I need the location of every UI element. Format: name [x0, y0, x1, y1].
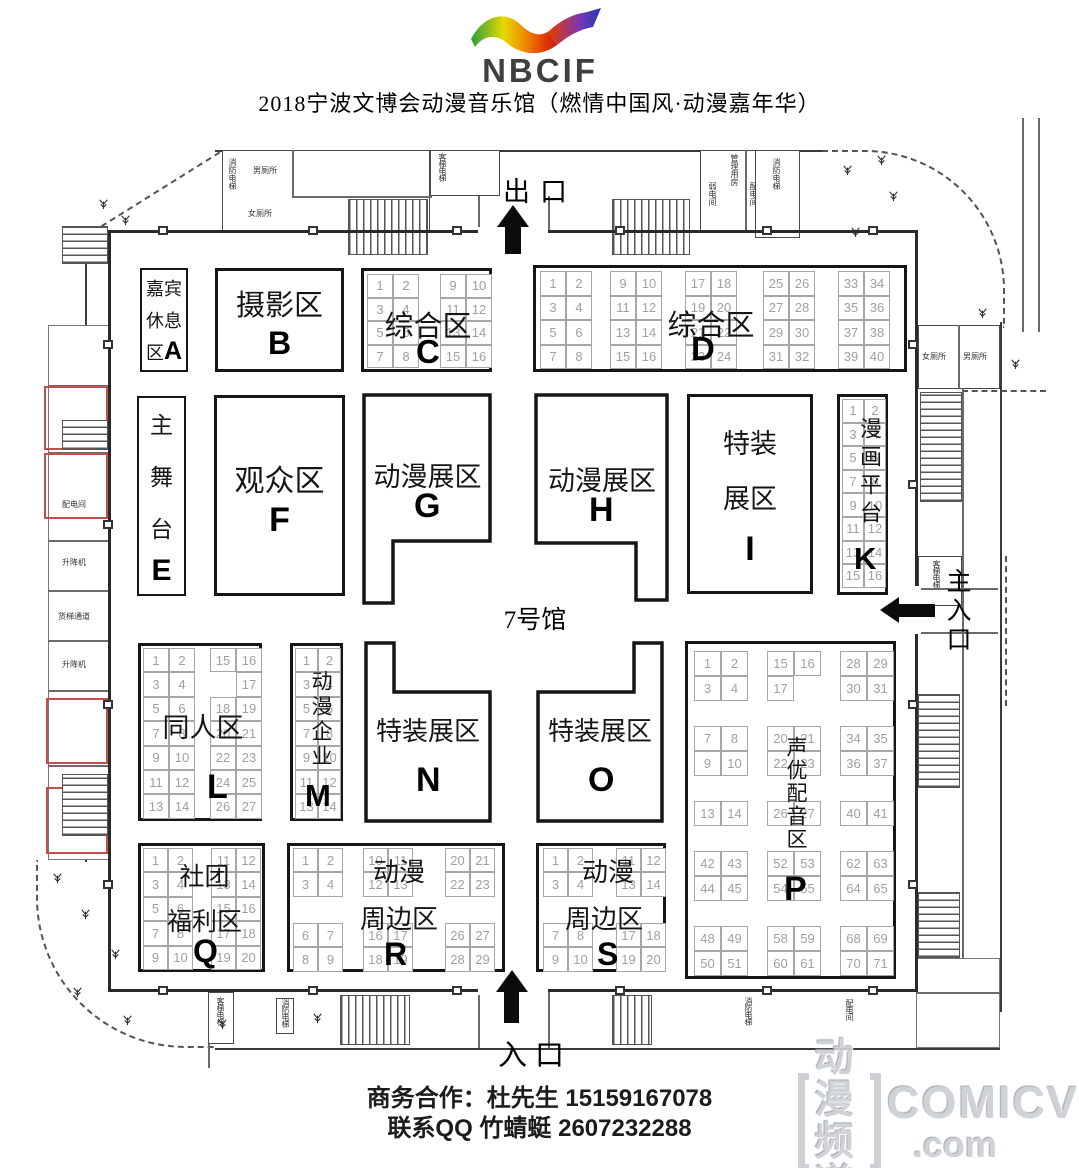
booth-cell: 27 — [470, 923, 495, 947]
booth-cell: 17 — [767, 676, 794, 701]
weak-current-room-label: 弱电间 — [708, 182, 716, 228]
zone-b-label: 摄影区 — [236, 282, 323, 324]
plant-icon — [96, 196, 111, 211]
zone-e: 主 舞 台 E — [137, 396, 186, 596]
booth-cell: 38 — [864, 320, 890, 345]
booth-cell: 2 — [566, 271, 592, 296]
booth-cell: 2 — [393, 274, 419, 298]
zone-f-label: 观众区 — [235, 456, 325, 500]
fire-elevator-label: 消防电梯 — [744, 997, 752, 1041]
booth-cell: 15 — [210, 648, 236, 672]
booth-cell: 40 — [864, 345, 890, 370]
exit-label: 出口 — [455, 170, 625, 209]
booth-grid: 62636465 — [840, 851, 894, 901]
booth-cell: 2 — [318, 648, 341, 672]
booth-cell: 28 — [840, 651, 867, 676]
booth-grid: 42434445 — [694, 851, 748, 901]
column-marker — [452, 986, 462, 995]
booth-cell: 10 — [721, 751, 748, 776]
booth-cell: 24 — [711, 345, 737, 370]
booth-cell: 20 — [641, 947, 666, 971]
booth-grid: 78910 — [694, 726, 748, 776]
womens-toilet-label: 女厕所 — [922, 352, 946, 361]
zone-i-letter: I — [745, 532, 754, 566]
booth-cell: 60 — [767, 951, 794, 976]
comicv-watermark: 动漫 频道 COMICV .com — [798, 1038, 1079, 1168]
booth-cell: 3 — [143, 672, 169, 696]
booth-cell: 17 — [685, 271, 711, 296]
zone-g-letter: G — [414, 489, 440, 523]
column-marker — [103, 340, 113, 349]
booth-cell: 45 — [721, 876, 748, 901]
logo-text: NBCIF — [425, 52, 655, 90]
plant-icon — [840, 162, 855, 177]
booth-cell: 39 — [838, 345, 864, 370]
zone-q: 12345678910 11121314151617181920 社团 福利区 … — [138, 843, 265, 972]
zone-p-label: 声优配音区 — [781, 736, 811, 866]
wall — [1022, 118, 1024, 332]
booth-grid: 910111213141516 — [610, 271, 662, 369]
booth-grid: 12345678 — [540, 271, 592, 369]
lift-label: 升降机 — [62, 660, 86, 669]
wall — [48, 690, 110, 692]
booth-cell: 16 — [236, 648, 262, 672]
booth-cell: 36 — [864, 296, 890, 321]
zone-n-label: 特装展区 — [376, 717, 480, 746]
plant-icon — [50, 870, 65, 885]
booth-cell: 12 — [169, 770, 195, 794]
page-title: 2018宁波文博会动漫音乐馆（燃情中国风·动漫嘉年华） — [0, 86, 1079, 118]
zone-s-letter: S — [597, 938, 618, 970]
booth-grid: 3334353637383940 — [838, 271, 890, 369]
exit-arrow-icon — [505, 226, 521, 254]
booth-grid: 1314 — [694, 801, 748, 826]
booth-cell: 31 — [867, 676, 894, 701]
main-entrance-arrow-icon — [880, 597, 899, 623]
column-marker — [308, 226, 318, 235]
main-entrance-label: 主入口 — [938, 568, 974, 672]
zone-c-letter: C — [416, 335, 440, 368]
booth-cell: 1 — [293, 848, 318, 872]
womens-toilet-label: 女厕所 — [248, 209, 272, 218]
zone-a: 嘉宾 休息 区 A — [140, 268, 188, 372]
zone-a-label: 休息 — [146, 307, 182, 333]
booth-cell: 14 — [721, 801, 748, 826]
booth-cell: 3 — [540, 296, 566, 321]
stairs-icon — [918, 694, 960, 788]
booth-cell: 51 — [721, 951, 748, 976]
stairs-icon — [340, 995, 410, 1045]
booth-grid: 28293031 — [840, 651, 894, 701]
wall — [745, 150, 747, 232]
power-room-label: 配电间 — [845, 999, 853, 1035]
booth-cell: 18 — [711, 271, 737, 296]
wall — [48, 765, 110, 767]
dashed-corner — [92, 152, 220, 233]
zone-k-label: 漫画平台 — [853, 417, 885, 543]
column-marker — [908, 880, 918, 889]
plant-icon — [78, 906, 93, 921]
booth-cell: 9 — [143, 746, 169, 770]
zone-g: 动漫展区 G — [362, 393, 493, 606]
booth-cell: 1 — [540, 271, 566, 296]
zone-o: 特装展区 O — [536, 641, 664, 823]
booth-cell: 26 — [789, 271, 815, 296]
plant-icon — [874, 152, 889, 167]
booth-cell: 11 — [143, 770, 169, 794]
booth-cell: 23 — [470, 872, 495, 896]
booth-cell: 25 — [763, 271, 789, 296]
column-marker — [615, 986, 625, 995]
stairs-icon — [62, 420, 108, 450]
booth-cell: 13 — [694, 801, 721, 826]
booth-cell: 41 — [867, 801, 894, 826]
zone-d-letter: D — [691, 332, 715, 365]
wall — [292, 196, 432, 198]
zone-q-label: 社团 — [179, 864, 229, 891]
booth-cell: 5 — [540, 320, 566, 345]
zone-s-label: 动漫 — [582, 858, 634, 887]
plant-icon — [310, 1010, 325, 1025]
dashed-wall — [962, 390, 1046, 392]
zone-m: 1234567891011121314 动漫企业 M — [290, 643, 343, 821]
booth-cell: 10 — [168, 946, 193, 970]
booth-cell: 35 — [867, 726, 894, 751]
plant-icon — [70, 984, 85, 999]
booth-cell: 68 — [840, 926, 867, 951]
entrance-label: 入口 — [450, 1032, 620, 1074]
zone-n-letter: N — [416, 763, 441, 797]
booth-cell: 7 — [367, 345, 393, 369]
booth-cell: 13 — [610, 320, 636, 345]
zone-f: 观众区 F — [214, 395, 345, 596]
booth-cell: 35 — [838, 296, 864, 321]
zone-r-letter: R — [384, 938, 407, 970]
zone-o-label: 特装展区 — [548, 717, 652, 746]
booth-cell: 1 — [694, 651, 721, 676]
booth-grid: 2526272829303132 — [763, 271, 815, 369]
booth-cell: 65 — [867, 876, 894, 901]
zone-b: 摄影区 B — [215, 268, 344, 372]
booth-cell: 9 — [440, 274, 466, 298]
zone-m-label: 动漫企业 — [306, 670, 336, 782]
booth-cell: 21 — [470, 848, 495, 872]
zone-a-letter: A — [164, 339, 182, 364]
booth-cell: 71 — [867, 951, 894, 976]
column-marker — [908, 340, 918, 349]
zone-f-letter: F — [269, 503, 290, 537]
booth-cell: 15 — [610, 345, 636, 370]
zone-e-letter: E — [151, 556, 171, 586]
zone-b-letter: B — [268, 327, 291, 359]
plant-icon — [215, 1016, 230, 1031]
zone-n: 特装展区 N — [364, 641, 492, 823]
management-room-label: 管理用房 — [730, 154, 738, 210]
column-marker — [158, 986, 168, 995]
zone-s: 1234 11121314 78910 17181920 动漫 周边区 S — [536, 843, 666, 972]
zone-e-label: 舞 — [150, 458, 173, 492]
booth-cell: 42 — [694, 851, 721, 876]
wall — [292, 150, 294, 196]
booth-cell: 16 — [466, 345, 492, 369]
booth-cell: 33 — [838, 271, 864, 296]
lift-label: 升降机 — [62, 558, 86, 567]
stairs-icon — [918, 892, 960, 958]
booth-cell: 1 — [367, 274, 393, 298]
wall — [1000, 322, 1002, 1012]
booth-cell: 3 — [293, 872, 318, 896]
zone-e-label: 台 — [150, 510, 173, 544]
booth-cell: 23 — [236, 746, 262, 770]
zone-a-label: 嘉宾 — [146, 275, 182, 301]
booth-cell: 59 — [794, 926, 821, 951]
column-marker — [615, 226, 625, 235]
booth-cell: 37 — [838, 320, 864, 345]
zone-p: 1234 151617 28293031 78910 20212223 3435… — [685, 641, 896, 979]
booth-grid: 58596061 — [767, 926, 821, 976]
zone-c: 12345678 910111213141516 综合区 C — [361, 268, 492, 372]
main-entrance-arrow-icon — [899, 604, 935, 617]
booth-cell: 63 — [867, 851, 894, 876]
booth-cell: 30 — [840, 676, 867, 701]
hall-label: 7号馆 — [470, 600, 600, 636]
booth-grid: 48495051 — [694, 926, 748, 976]
booth-cell: 69 — [867, 926, 894, 951]
booth-cell: 8 — [721, 726, 748, 751]
booth-cell: 13 — [143, 794, 169, 818]
booth-cell: 6 — [293, 923, 318, 947]
booth-cell: 28 — [445, 947, 470, 971]
booth-cell: 4 — [721, 676, 748, 701]
wall — [48, 640, 110, 642]
booth-cell — [794, 676, 821, 701]
booth-grid: 34353637 — [840, 726, 894, 776]
booth-cell: 25 — [236, 770, 262, 794]
zone-i: 特装 展区 I — [687, 394, 813, 594]
booth-cell: 19 — [616, 947, 641, 971]
exit-arrow-icon — [497, 205, 529, 227]
booth-cell: 7 — [540, 345, 566, 370]
nbcif-logo-ribbon-icon — [459, 5, 611, 55]
column-marker — [908, 700, 918, 709]
zone-h-letter: H — [589, 493, 614, 527]
mens-toilet-label: 男厕所 — [253, 166, 277, 175]
plant-icon — [118, 212, 133, 227]
booth-cell: 9 — [610, 271, 636, 296]
booth-grid: 1234 — [694, 651, 748, 701]
booth-cell: 2 — [721, 651, 748, 676]
booth-cell: 10 — [169, 746, 195, 770]
booth-cell: 62 — [840, 851, 867, 876]
booth-cell: 58 — [767, 926, 794, 951]
booth-cell: 16 — [636, 345, 662, 370]
booth-cell: 22 — [210, 746, 236, 770]
zone-p-letter: P — [784, 872, 807, 906]
booth-cell: 9 — [694, 751, 721, 776]
zone-r-label: 动漫 — [373, 858, 425, 887]
zone-q-letter: Q — [193, 935, 218, 967]
stairs-icon — [62, 226, 108, 264]
zone-m-letter: M — [305, 780, 331, 811]
booth-cell: 50 — [694, 951, 721, 976]
booth-cell: 1 — [143, 648, 169, 672]
booth-cell: 9 — [143, 946, 168, 970]
booth-cell: 10 — [466, 274, 492, 298]
booth-cell: 61 — [794, 951, 821, 976]
booth-cell: 31 — [763, 345, 789, 370]
watermark-domain: .com — [913, 1125, 1079, 1165]
zone-r: 1234 10111213 20212223 6789 16171819 262… — [287, 843, 505, 972]
booth-cell: 7 — [694, 726, 721, 751]
zone-r-label: 周边区 — [360, 905, 438, 934]
plant-icon — [975, 305, 990, 320]
column-marker — [762, 986, 772, 995]
power-room-label: 配电间 — [62, 500, 86, 509]
booth-cell: 29 — [470, 947, 495, 971]
column-marker — [868, 986, 878, 995]
zone-s-label: 周边区 — [565, 905, 643, 934]
booth-cell: 8 — [293, 947, 318, 971]
stairs-icon — [920, 392, 962, 502]
booth-cell: 70 — [840, 951, 867, 976]
booth-cell: 32 — [789, 345, 815, 370]
fire-elevator-label: 消防电梯 — [281, 999, 289, 1035]
mens-toilet-label: 男厕所 — [963, 352, 987, 361]
booth-cell: 49 — [721, 926, 748, 951]
booth-cell: 20 — [236, 946, 261, 970]
zone-d: 12345678 910111213141516 171819202122232… — [533, 265, 907, 372]
booth-cell: 1 — [295, 648, 318, 672]
booth-cell: 3 — [694, 676, 721, 701]
booth-cell: 10 — [568, 947, 593, 971]
dashed-wall — [1005, 556, 1007, 706]
plant-icon — [120, 1012, 135, 1027]
booth-cell: 34 — [864, 271, 890, 296]
column-marker — [908, 480, 918, 489]
column-marker — [762, 226, 772, 235]
column-marker — [158, 226, 168, 235]
zone-k: 12345678910111213141516 漫画平台 K — [837, 394, 888, 595]
plant-icon — [886, 188, 901, 203]
booth-cell: 6 — [566, 320, 592, 345]
booth-cell: 2 — [169, 648, 195, 672]
booth-cell: 43 — [721, 851, 748, 876]
booth-cell: 10 — [636, 271, 662, 296]
column-marker — [452, 226, 462, 235]
booth-cell: 16 — [794, 651, 821, 676]
zone-a-label: 区 — [146, 339, 164, 365]
booth-cell: 30 — [789, 320, 815, 345]
booth-cell: 4 — [566, 296, 592, 321]
room — [916, 958, 1000, 1048]
booth-cell: 29 — [867, 651, 894, 676]
booth-grid: 68697071 — [840, 926, 894, 976]
fire-elevator-label: 消防电梯 — [228, 158, 236, 224]
booth-cell: 64 — [840, 876, 867, 901]
red-room-outline — [46, 698, 108, 764]
booth-cell: 8 — [566, 345, 592, 370]
column-marker — [103, 880, 113, 889]
wall — [48, 540, 110, 542]
watermark-cn: 动漫 — [815, 1038, 864, 1122]
freight-passage-label: 货梯通道 — [58, 612, 90, 621]
watermark-bracket-icon — [798, 1073, 809, 1168]
booth-cell: 28 — [789, 296, 815, 321]
zone-i-label: 展区 — [723, 477, 777, 516]
zone-e-label: 主 — [150, 406, 173, 440]
booth-grid: 4041 — [840, 801, 894, 826]
booth-cell: 11 — [610, 296, 636, 321]
watermark-cn: 频道 — [815, 1122, 864, 1168]
column-marker — [103, 520, 113, 529]
passenger-elevator-label: 客梯电梯 — [438, 153, 446, 195]
zone-k-letter: K — [854, 543, 876, 574]
zone-l: 1234567891011121314 15161718192021222324… — [138, 643, 262, 821]
booth-cell: 27 — [763, 296, 789, 321]
column-marker — [103, 700, 113, 709]
zone-l-letter: L — [207, 770, 228, 804]
booth-cell: 17 — [236, 672, 262, 696]
booth-cell: 27 — [236, 794, 262, 818]
fire-elevator-label: 消防电梯 — [772, 158, 780, 226]
booth-cell: 15 — [767, 651, 794, 676]
wall — [916, 992, 1000, 994]
booth-cell: 14 — [169, 794, 195, 818]
zone-i-label: 特装 — [723, 422, 777, 461]
booth-cell: 9 — [318, 947, 343, 971]
booth-grid: 151617 — [767, 651, 821, 701]
booth-cell: 44 — [694, 876, 721, 901]
booth-cell: 9 — [543, 947, 568, 971]
booth-cell: 15 — [440, 345, 466, 369]
entrance-arrow-icon — [496, 970, 528, 992]
column-marker — [308, 986, 318, 995]
booth-cell: 34 — [840, 726, 867, 751]
booth-cell: 36 — [840, 751, 867, 776]
wall — [48, 590, 110, 592]
wall — [1038, 118, 1040, 332]
watermark-bracket-icon — [870, 1073, 881, 1168]
zone-q-label: 福利区 — [167, 909, 242, 936]
stairs-icon — [62, 774, 108, 836]
zone-l-label: 同人区 — [163, 713, 244, 743]
booth-cell: 29 — [763, 320, 789, 345]
zone-h: 动漫展区 H — [534, 393, 670, 603]
wall — [958, 325, 960, 389]
booth-cell: 37 — [867, 751, 894, 776]
booth-cell — [210, 672, 236, 696]
booth-cell: 4 — [169, 672, 195, 696]
floorplan-canvas: NBCIF 2018宁波文博会动漫音乐馆（燃情中国风·动漫嘉年华） 消防电梯 男… — [0, 0, 1079, 1168]
booth-cell: 48 — [694, 926, 721, 951]
watermark-en: COMICV — [887, 1080, 1079, 1125]
booth-cell: 40 — [840, 801, 867, 826]
zone-o-letter: O — [588, 763, 614, 797]
entrance-arrow-icon — [504, 991, 519, 1023]
plant-icon — [1008, 356, 1023, 371]
column-marker — [868, 226, 878, 235]
